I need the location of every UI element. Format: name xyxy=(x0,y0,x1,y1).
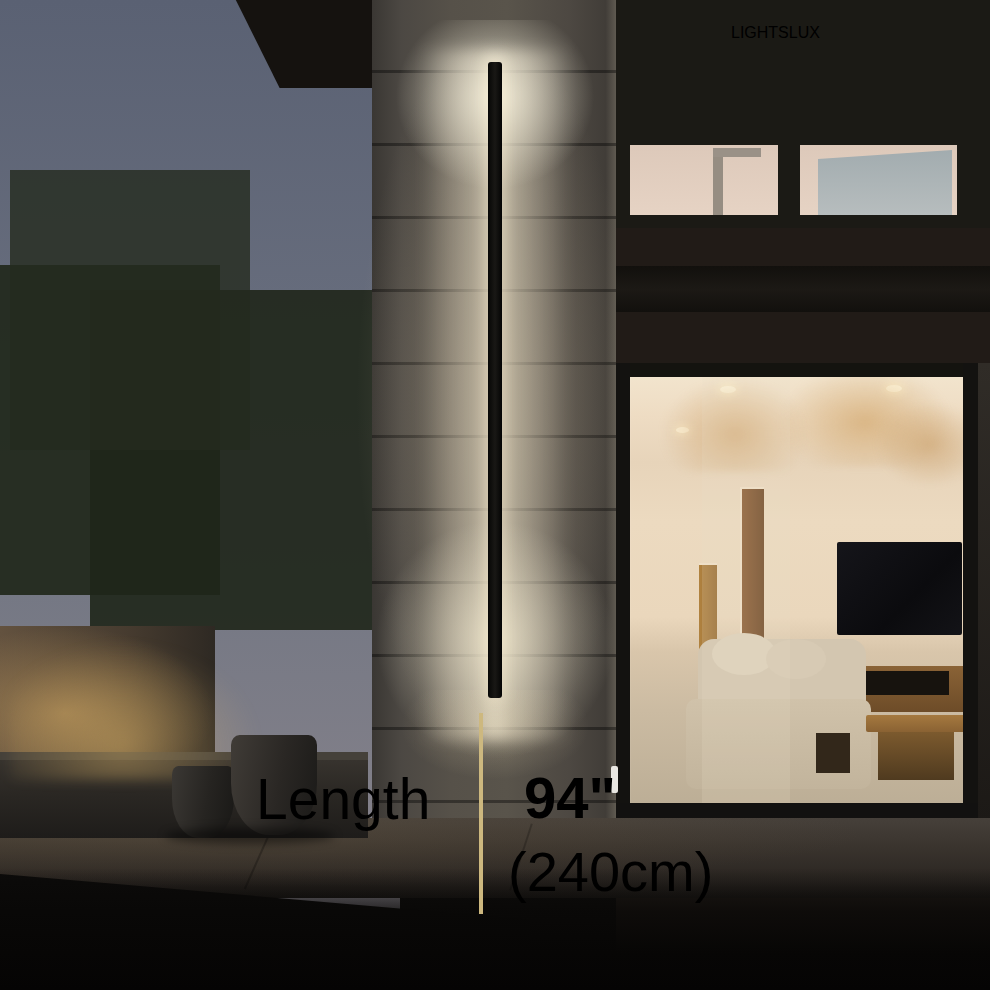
vignette xyxy=(0,0,990,990)
product-image-canvas: LIGHTSLUX Length 94" (240cm) xyxy=(0,0,990,990)
length-label: Length xyxy=(256,766,430,832)
length-value-imperial: 94" xyxy=(524,764,616,831)
measure-divider-line xyxy=(479,713,483,914)
length-value-metric: (240cm) xyxy=(508,839,713,904)
brand-logo: LIGHTSLUX xyxy=(731,24,820,42)
